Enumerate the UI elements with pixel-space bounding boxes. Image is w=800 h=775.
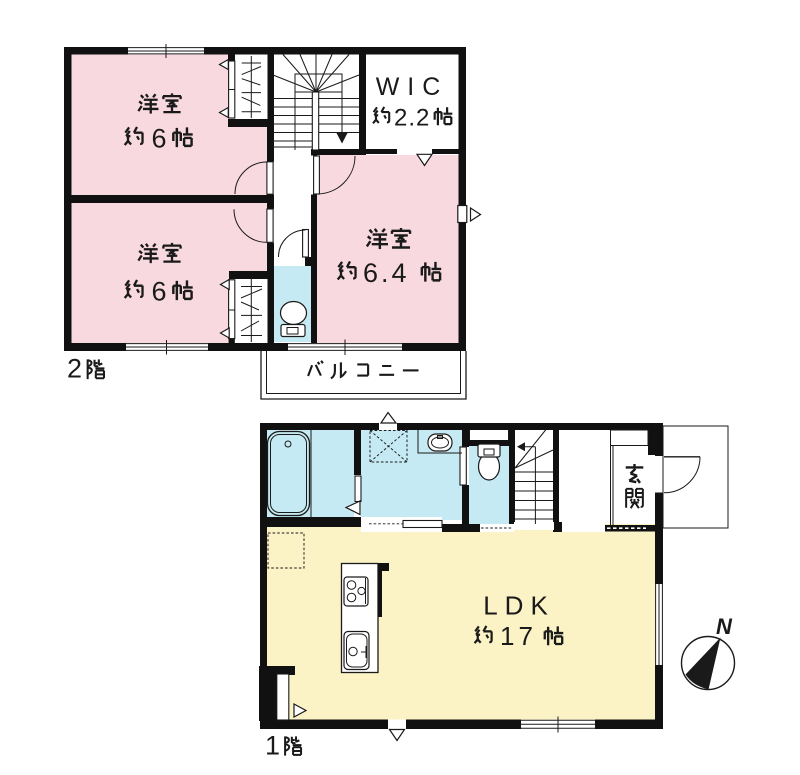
- svg-text:6.4: 6.4: [363, 258, 410, 288]
- svg-text:WIC: WIC: [376, 73, 449, 101]
- svg-text:6: 6: [151, 124, 166, 154]
- svg-text:1: 1: [265, 731, 280, 761]
- svg-text:LDK: LDK: [483, 591, 555, 621]
- svg-text:2: 2: [67, 354, 82, 384]
- svg-text:N: N: [716, 614, 733, 639]
- svg-text:6: 6: [151, 277, 166, 307]
- svg-text:17: 17: [500, 621, 537, 651]
- svg-text:2.2: 2.2: [394, 105, 430, 132]
